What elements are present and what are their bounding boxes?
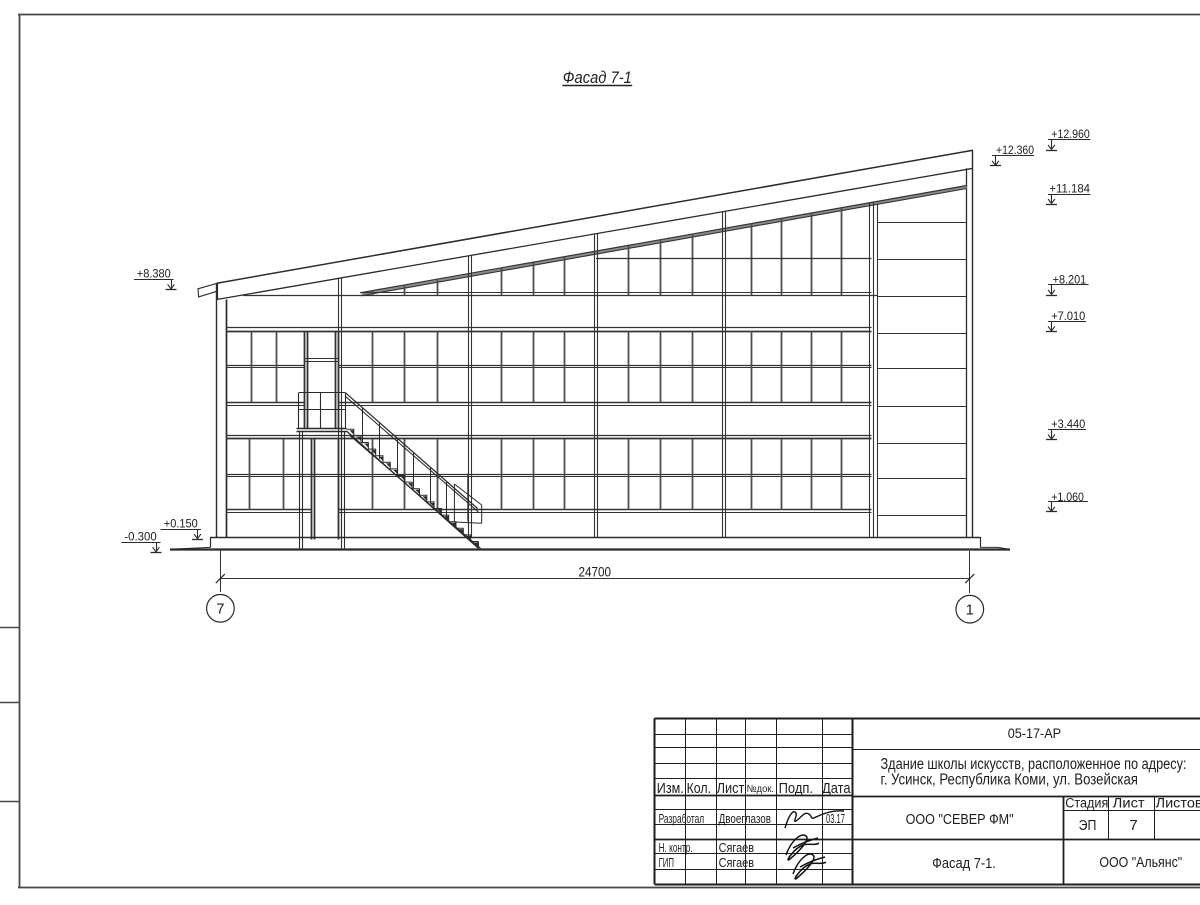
svg-text:-0.300: -0.300 bbox=[124, 530, 157, 544]
svg-text:ООО "Альянс": ООО "Альянс" bbox=[1099, 854, 1182, 871]
svg-text:Листов: Листов bbox=[1156, 796, 1200, 811]
svg-text:7: 7 bbox=[1129, 817, 1137, 834]
svg-text:24700: 24700 bbox=[579, 564, 612, 579]
svg-text:Разработал: Разработал bbox=[659, 812, 705, 826]
svg-text:ГИП: ГИП bbox=[659, 856, 674, 870]
svg-text:+12.960: +12.960 bbox=[1051, 127, 1090, 141]
svg-text:Кол.: Кол. bbox=[687, 781, 711, 797]
svg-text:+11.184: +11.184 bbox=[1049, 182, 1090, 196]
svg-text:Фасад 7-1: Фасад 7-1 bbox=[563, 69, 632, 87]
svg-text:Дата: Дата bbox=[822, 781, 851, 797]
svg-text:г. Усинск, Республика Коми, ул: г. Усинск, Республика Коми, ул. Возейска… bbox=[881, 771, 1138, 788]
svg-text:Лист: Лист bbox=[717, 781, 745, 797]
svg-text:Сягаев: Сягаев bbox=[719, 856, 755, 870]
svg-text:03.17: 03.17 bbox=[826, 812, 845, 826]
svg-text:+0.150: +0.150 bbox=[164, 516, 198, 530]
svg-text:05-17-АР: 05-17-АР bbox=[1008, 725, 1061, 741]
svg-text:№док.: №док. bbox=[747, 783, 774, 795]
svg-text:ООО "СЕВЕР ФМ": ООО "СЕВЕР ФМ" bbox=[906, 811, 1014, 828]
svg-text:1: 1 bbox=[966, 603, 974, 619]
svg-text:Лист: Лист bbox=[1113, 796, 1145, 811]
svg-text:+12.360: +12.360 bbox=[996, 143, 1034, 157]
svg-text:+7.010: +7.010 bbox=[1051, 309, 1086, 323]
svg-text:ЭП: ЭП bbox=[1079, 817, 1097, 834]
svg-text:7: 7 bbox=[216, 602, 224, 618]
svg-text:Фасад 7-1.: Фасад 7-1. bbox=[932, 855, 996, 872]
svg-text:Двоеглазов: Двоеглазов bbox=[719, 812, 772, 826]
svg-text:Подп.: Подп. bbox=[779, 781, 813, 797]
svg-text:Изм.: Изм. bbox=[657, 781, 684, 797]
svg-text:Н. контр.: Н. контр. bbox=[659, 841, 693, 855]
svg-text:Стадия: Стадия bbox=[1065, 796, 1108, 811]
svg-text:+8.380: +8.380 bbox=[137, 266, 171, 280]
svg-text:Сягаев: Сягаев bbox=[719, 841, 755, 855]
